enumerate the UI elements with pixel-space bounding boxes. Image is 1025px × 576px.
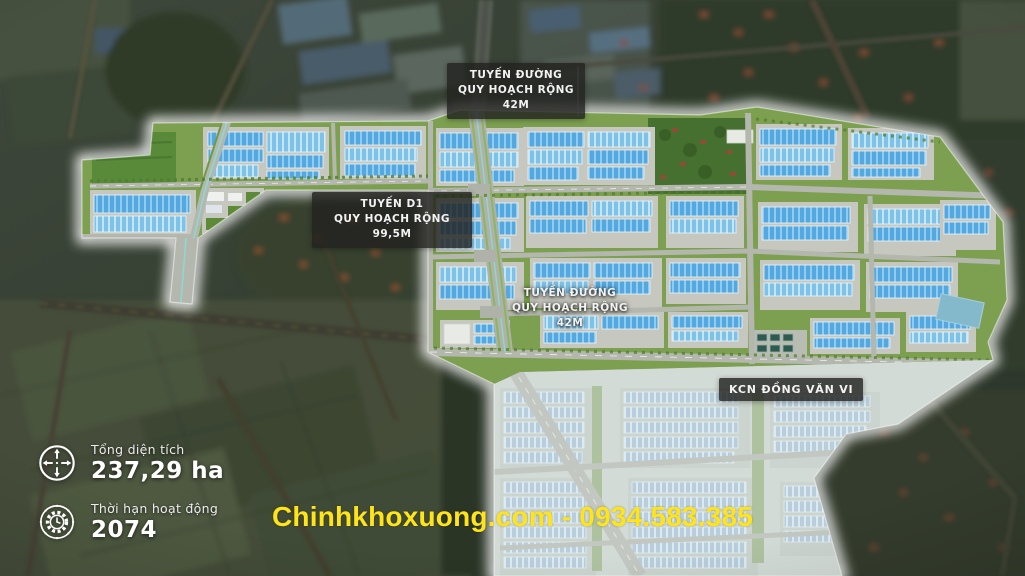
gear-clock-icon: [38, 503, 76, 541]
stat-label: Thời hạn hoạt động: [91, 501, 218, 516]
road-label-line2: QUY HOẠCH RỘNG 99,5M: [318, 212, 466, 242]
park-main-block: [420, 100, 1015, 385]
stat-duration: Thời hạn hoạt động 2074: [38, 501, 224, 543]
road-label-top-42m: TUYẾN ĐƯỜNG QUY HOẠCH RỘNG 42M: [447, 63, 585, 119]
stat-total-area: Tổng diện tích 237,29 ha: [38, 442, 224, 484]
road-label-mid-42m: TUYẾN ĐƯỜNG QUY HOẠCH RỘNG 42M: [498, 286, 642, 332]
stat-value: 2074: [91, 517, 218, 543]
stats-panel: Tổng diện tích 237,29 ha Thời hạn hoạt đ…: [38, 442, 224, 543]
stat-value: 237,29 ha: [91, 458, 224, 484]
masterplan-scene: TUYẾN ĐƯỜNG QUY HOẠCH RỘNG 42M TUYẾN D1 …: [0, 0, 1025, 576]
road-label-line1: TUYẾN ĐƯỜNG: [498, 286, 642, 301]
road-label-line1: TUYẾN ĐƯỜNG: [453, 68, 579, 83]
zone-label-kcn: KCN ĐỒNG VĂN VI: [719, 378, 863, 401]
road-label-line2: QUY HOẠCH RỘNG 42M: [498, 301, 642, 331]
road-label-line2: QUY HOẠCH RỘNG 42M: [453, 83, 579, 113]
stat-label: Tổng diện tích: [91, 442, 224, 457]
road-label-d1: TUYẾN D1 QUY HOẠCH RỘNG 99,5M: [312, 192, 472, 248]
road-label-line1: TUYẾN D1: [318, 197, 466, 212]
area-expand-icon: [38, 444, 76, 482]
watermark-text: Chinhkhoxuong.com - 0934.583.385: [272, 501, 753, 533]
